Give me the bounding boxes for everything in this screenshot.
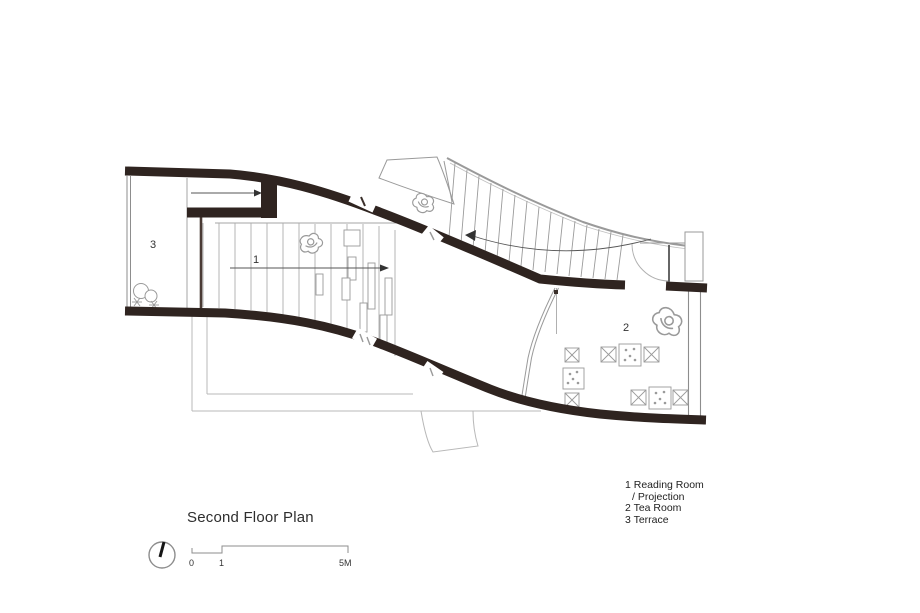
railing-post [554,290,558,294]
tea-room-label: 2 [623,322,629,334]
stair-arrowhead-icon [465,230,476,241]
structural-walls [125,171,707,420]
tea-room-door [632,244,669,282]
chair [565,348,579,362]
room-legend: 1 Reading Room / Projection 2 Tea Room 3… [625,480,704,526]
terrace-room [127,176,187,309]
legend-line: 2 Tea Room [625,503,704,515]
plant-figure [648,303,687,342]
floor-plan-page: 3 1 2 0 1 5M Second Floor Plan 1 Reading… [0,0,920,613]
floor-plan-drawing: 3 1 2 0 1 5M [0,0,920,613]
terrace-plant [132,284,159,310]
chair [631,390,646,405]
chair [673,390,688,405]
scale-one: 1 [219,558,224,568]
scale-five: 5M [339,558,352,568]
stair-treads [449,163,623,280]
scale-bar: 0 1 5M [189,546,352,568]
curved-stair [447,158,688,280]
door-swing-arc [632,244,669,281]
legend-line: 3 Terrace [625,515,704,527]
stair-direction-arrow [473,236,651,251]
stair-landing-fan [379,157,454,217]
corridor-arrow [191,190,262,197]
tea-room-furniture [563,344,688,409]
drawing-title: Second Floor Plan [187,509,314,526]
table [563,368,584,389]
reading-room-label: 1 [253,254,259,266]
table [619,344,641,366]
section-arrowhead-icon [380,265,389,272]
chair [644,347,659,362]
person-figure [298,232,325,256]
chair [565,393,579,407]
shaft-outline [685,232,703,281]
table [649,387,671,409]
legend-line: 1 Reading Room [625,480,704,492]
chair [601,347,616,362]
scale-zero: 0 [189,558,194,568]
north-arrow-icon [149,542,175,568]
terrace-label: 3 [150,239,156,251]
corridor-arrowhead-icon [254,190,262,197]
